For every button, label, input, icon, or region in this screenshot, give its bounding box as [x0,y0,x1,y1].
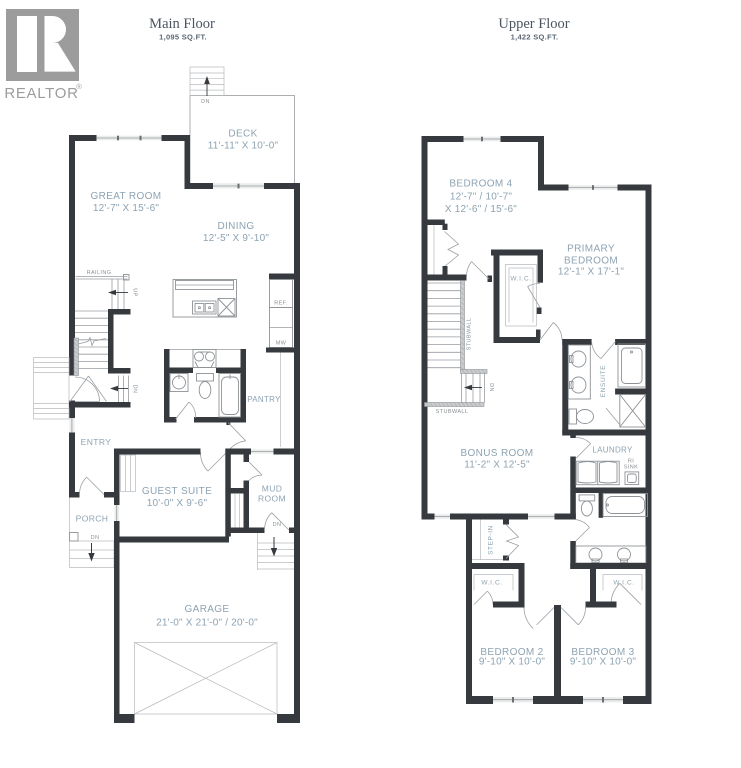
svg-text:9'-10" X 10'-0": 9'-10" X 10'-0" [479,657,545,668]
svg-text:STUBWALL: STUBWALL [436,409,469,415]
svg-text:DN: DN [488,383,494,392]
svg-text:W.I.C.: W.I.C. [481,580,502,587]
svg-text:DN: DN [201,99,210,105]
svg-text:®: ® [76,82,82,91]
svg-text:STEP-IN: STEP-IN [488,525,495,555]
svg-text:Main Floor: Main Floor [149,16,215,32]
svg-text:BONUS ROOM: BONUS ROOM [461,448,534,459]
svg-text:11'-2" X 12'-5": 11'-2" X 12'-5" [464,460,530,471]
svg-text:GARAGE: GARAGE [185,604,230,615]
svg-text:SINK: SINK [624,465,638,471]
svg-text:GREAT ROOM: GREAT ROOM [91,191,162,202]
svg-text:BEDROOM: BEDROOM [564,256,618,267]
svg-text:REF.: REF. [274,301,288,307]
svg-text:MUD: MUD [262,484,283,494]
svg-text:12'-5" X 9'-10": 12'-5" X 9'-10" [203,233,269,244]
svg-text:W.I.C.: W.I.C. [613,580,634,587]
svg-text:12'-7" X 15'-6": 12'-7" X 15'-6" [93,203,159,214]
svg-text:DN: DN [273,522,282,528]
svg-text:RAILING: RAILING [87,270,112,276]
svg-text:GUEST SUITE: GUEST SUITE [142,486,212,497]
svg-text:9'-10" X 10'-0": 9'-10" X 10'-0" [570,657,636,668]
svg-text:PANTRY: PANTRY [247,395,281,404]
svg-text:LAUNDRY: LAUNDRY [592,446,633,455]
svg-text:DECK: DECK [228,129,257,140]
svg-text:12'-7" / 10'-7": 12'-7" / 10'-7" [450,192,513,203]
svg-text:STUBWALL: STUBWALL [467,318,473,351]
svg-text:1,422 SQ.FT.: 1,422 SQ.FT. [511,33,559,42]
svg-text:DINING: DINING [217,221,254,232]
svg-text:BEDROOM 4: BEDROOM 4 [449,179,512,190]
svg-text:UP: UP [132,288,138,296]
svg-text:W.I.C.: W.I.C. [510,276,531,283]
svg-text:ENTRY: ENTRY [81,437,112,447]
svg-text:MW: MW [276,341,287,347]
svg-text:PRIMARY: PRIMARY [567,244,615,255]
svg-text:PORCH: PORCH [76,514,109,524]
svg-text:ENSUITE: ENSUITE [600,365,607,397]
svg-text:X 12'-6" / 15'-6": X 12'-6" / 15'-6" [445,204,517,215]
svg-text:10'-0" X 9'-6": 10'-0" X 9'-6" [147,498,208,509]
svg-text:Upper Floor: Upper Floor [498,16,569,32]
svg-text:1,095 SQ.FT.: 1,095 SQ.FT. [159,33,207,42]
svg-text:12'-1" X 17'-1": 12'-1" X 17'-1" [558,267,624,278]
svg-text:11'-11" X 10'-0": 11'-11" X 10'-0" [208,141,279,152]
svg-text:DN: DN [132,385,138,394]
svg-text:DN: DN [91,535,100,541]
svg-text:21'-0" X 21'-0" / 20'-0": 21'-0" X 21'-0" / 20'-0" [156,618,258,629]
svg-text:REALTOR: REALTOR [4,85,78,102]
svg-text:ROOM: ROOM [258,494,286,504]
